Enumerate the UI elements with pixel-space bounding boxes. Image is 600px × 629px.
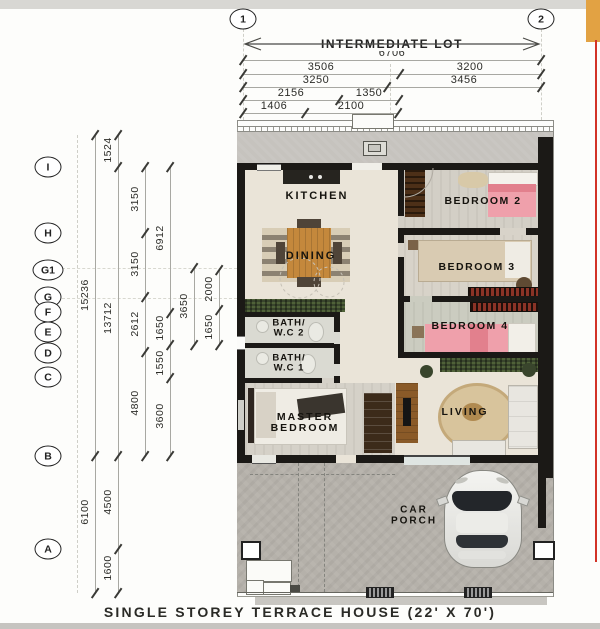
utility-box xyxy=(263,582,291,595)
front-fence-line xyxy=(237,596,553,597)
grid-bubble-B: B xyxy=(35,446,62,467)
dim-label: 2000 xyxy=(203,276,215,301)
dining-chair xyxy=(297,277,321,287)
dining-chair xyxy=(276,242,285,264)
dim-label: 1350 xyxy=(356,87,382,99)
dim-label: 3600 xyxy=(154,403,166,428)
wall-bath-top xyxy=(245,312,340,317)
dim-line xyxy=(95,135,96,594)
room-label-master-line2: BEDROOM xyxy=(271,422,340,434)
scan-red-edge xyxy=(595,40,597,562)
kitchen-sink xyxy=(309,175,313,179)
grid-bubble-1: 1 xyxy=(230,9,257,30)
roof-line-dashed xyxy=(324,463,325,592)
room-label-dining: DINING xyxy=(286,250,337,262)
dim-label: 1650 xyxy=(203,314,215,339)
bedroom2-bench xyxy=(458,172,488,188)
front-fence-line xyxy=(237,592,553,593)
tv xyxy=(403,398,411,426)
room-label-bath1-line2: W.C 1 xyxy=(274,363,305,374)
roof-line-dashed xyxy=(298,463,299,592)
extension-line xyxy=(390,64,391,120)
living-glass-door xyxy=(404,455,470,465)
rear-entrance-door xyxy=(352,163,382,170)
room-label-bedroom2: BEDROOM 2 xyxy=(444,195,521,207)
road-edge xyxy=(255,597,547,605)
kitchen-sink xyxy=(318,175,322,179)
lot-boundary-right xyxy=(553,120,554,597)
dim-line xyxy=(194,268,195,345)
room-label-bath2-line2: W.C 2 xyxy=(274,328,305,339)
extension-line xyxy=(62,268,237,269)
wall-bedroom4-bottom xyxy=(398,352,538,358)
grid-bubble-I: I xyxy=(35,157,62,178)
bedroom4-bed-pillows xyxy=(508,323,536,355)
grid-bubble-D-label: D xyxy=(44,347,52,359)
extension-line xyxy=(77,135,78,593)
dim-tick xyxy=(166,451,174,462)
gate-track xyxy=(464,587,492,598)
dim-label: 3150 xyxy=(129,251,141,276)
scan-top-band xyxy=(0,0,600,9)
bath2-toilet xyxy=(308,322,324,342)
grid-bubble-2: 2 xyxy=(528,9,555,30)
dim-line xyxy=(118,135,119,594)
wall-bath-divider xyxy=(245,343,334,348)
room-label-carporch-line2: PORCH xyxy=(391,516,437,527)
window-master xyxy=(238,400,244,430)
utility-box xyxy=(246,560,292,582)
scan-orange-edge xyxy=(586,0,600,42)
party-wall-right-lower xyxy=(538,478,546,528)
exterior-wall-top xyxy=(237,163,553,170)
front-door xyxy=(336,455,356,463)
grid-bubble-1-label: 1 xyxy=(240,13,246,25)
door-bath1 xyxy=(334,364,340,376)
bath1-sink xyxy=(256,352,269,365)
grid-bubble-F-label: F xyxy=(45,306,51,318)
bedroom2-bed-fold xyxy=(488,184,536,192)
dim-label: 13712 xyxy=(102,302,114,334)
door-bedroom2 xyxy=(398,216,404,228)
dim-label: 1524 xyxy=(102,137,114,162)
window-master-front xyxy=(252,455,276,464)
dim-tick xyxy=(190,340,198,351)
dim-tick xyxy=(215,340,223,351)
dim-label: 3150 xyxy=(129,186,141,211)
dim-label: 6912 xyxy=(154,225,166,250)
window-bath xyxy=(237,336,245,350)
car-roof xyxy=(456,513,508,533)
grid-bubble-H-label: H xyxy=(44,227,52,239)
front-wall xyxy=(237,455,553,463)
porch-column xyxy=(533,541,555,560)
bedroom2-wardrobe xyxy=(405,170,425,217)
grid-bubble-G1-label: G1 xyxy=(41,264,55,276)
dim-label: 3456 xyxy=(451,74,477,86)
room-label-bedroom4: BEDROOM 4 xyxy=(431,320,508,332)
dim-label: 1550 xyxy=(154,350,166,375)
dim-label: 3650 xyxy=(178,293,190,318)
grid-bubble-2-label: 2 xyxy=(538,13,544,25)
room-label-bedroom3: BEDROOM 3 xyxy=(438,261,515,273)
dim-label: 6100 xyxy=(79,499,91,524)
dim-label: 4800 xyxy=(129,390,141,415)
dim-label: 3200 xyxy=(457,61,483,73)
dim-label: 2156 xyxy=(278,87,304,99)
porch-column xyxy=(241,541,261,560)
dim-label: 4500 xyxy=(102,489,114,514)
door-master xyxy=(322,378,334,383)
back-lane xyxy=(237,131,553,165)
dim-tick xyxy=(141,451,149,462)
room-label-carporch-line1: CAR xyxy=(400,505,428,516)
rear-step xyxy=(352,114,394,129)
dim-label: 1600 xyxy=(102,555,114,580)
dim-label: 15236 xyxy=(79,279,91,311)
dim-line xyxy=(145,167,146,456)
bedroom4-sidetable xyxy=(412,326,424,338)
window-kitchen xyxy=(257,164,281,171)
lot-label: INTERMEDIATE LOT xyxy=(313,37,471,51)
dim-label: 2100 xyxy=(338,100,364,112)
grid-bubble-I-label: I xyxy=(47,161,50,173)
bedroom4-wardrobe xyxy=(470,302,540,312)
master-wardrobe xyxy=(364,393,392,453)
grid-bubble-E: E xyxy=(35,322,62,343)
grid-bubble-C-label: C xyxy=(44,371,52,383)
rear-drain-line xyxy=(237,120,553,121)
sheet-title: SINGLE STOREY TERRACE HOUSE (22' X 70') xyxy=(0,604,600,620)
grid-bubble-A-label: A xyxy=(44,543,52,555)
living-armchair xyxy=(452,440,506,456)
scan-bottom-band xyxy=(0,623,600,629)
dim-label: 2612 xyxy=(129,311,141,336)
manhole-inner xyxy=(368,144,381,152)
living-sofa xyxy=(508,385,538,449)
dim-line xyxy=(243,74,541,75)
car-windshield xyxy=(452,491,512,511)
grid-bubble-E-label: E xyxy=(44,326,51,338)
car-trunk xyxy=(458,551,506,559)
bath2-sink xyxy=(256,320,269,333)
door-bath2 xyxy=(334,332,340,344)
roof-line-dashed xyxy=(250,474,395,475)
courtyard-planter xyxy=(245,299,345,312)
wall-bedroom4-left xyxy=(398,302,404,358)
party-wall-right xyxy=(538,137,553,478)
dim-tick xyxy=(91,588,99,599)
door-bedroom3 xyxy=(398,243,404,257)
grid-bubble-H: H xyxy=(35,223,62,244)
grid-bubble-D: D xyxy=(35,343,62,364)
grid-bubble-C: C xyxy=(35,367,62,388)
dim-label: 1650 xyxy=(154,315,166,340)
dim-tick xyxy=(114,588,122,599)
room-label-living: LIVING xyxy=(441,406,488,418)
living-plant xyxy=(420,365,433,378)
door-bedroom4 xyxy=(410,296,432,302)
grid-bubble-G1: G1 xyxy=(33,260,64,281)
dim-label: 3506 xyxy=(308,61,334,73)
gate-track xyxy=(366,587,394,598)
grid-bubble-A: A xyxy=(35,539,62,560)
door-bedroom3-b xyxy=(500,228,526,235)
room-label-kitchen: KITCHEN xyxy=(286,190,349,202)
dim-label: 3250 xyxy=(303,74,329,86)
car-rear-window xyxy=(456,535,508,548)
living-plant xyxy=(522,363,536,377)
dim-line xyxy=(243,60,541,61)
grid-bubble-B-label: B xyxy=(44,450,52,462)
dim-label: 1406 xyxy=(261,100,287,112)
grid-bubble-F: F xyxy=(35,302,62,323)
floor-plan-sheet: 1 2 INTERMEDIATE LOT 6706 3506 3200 3250… xyxy=(0,0,600,629)
